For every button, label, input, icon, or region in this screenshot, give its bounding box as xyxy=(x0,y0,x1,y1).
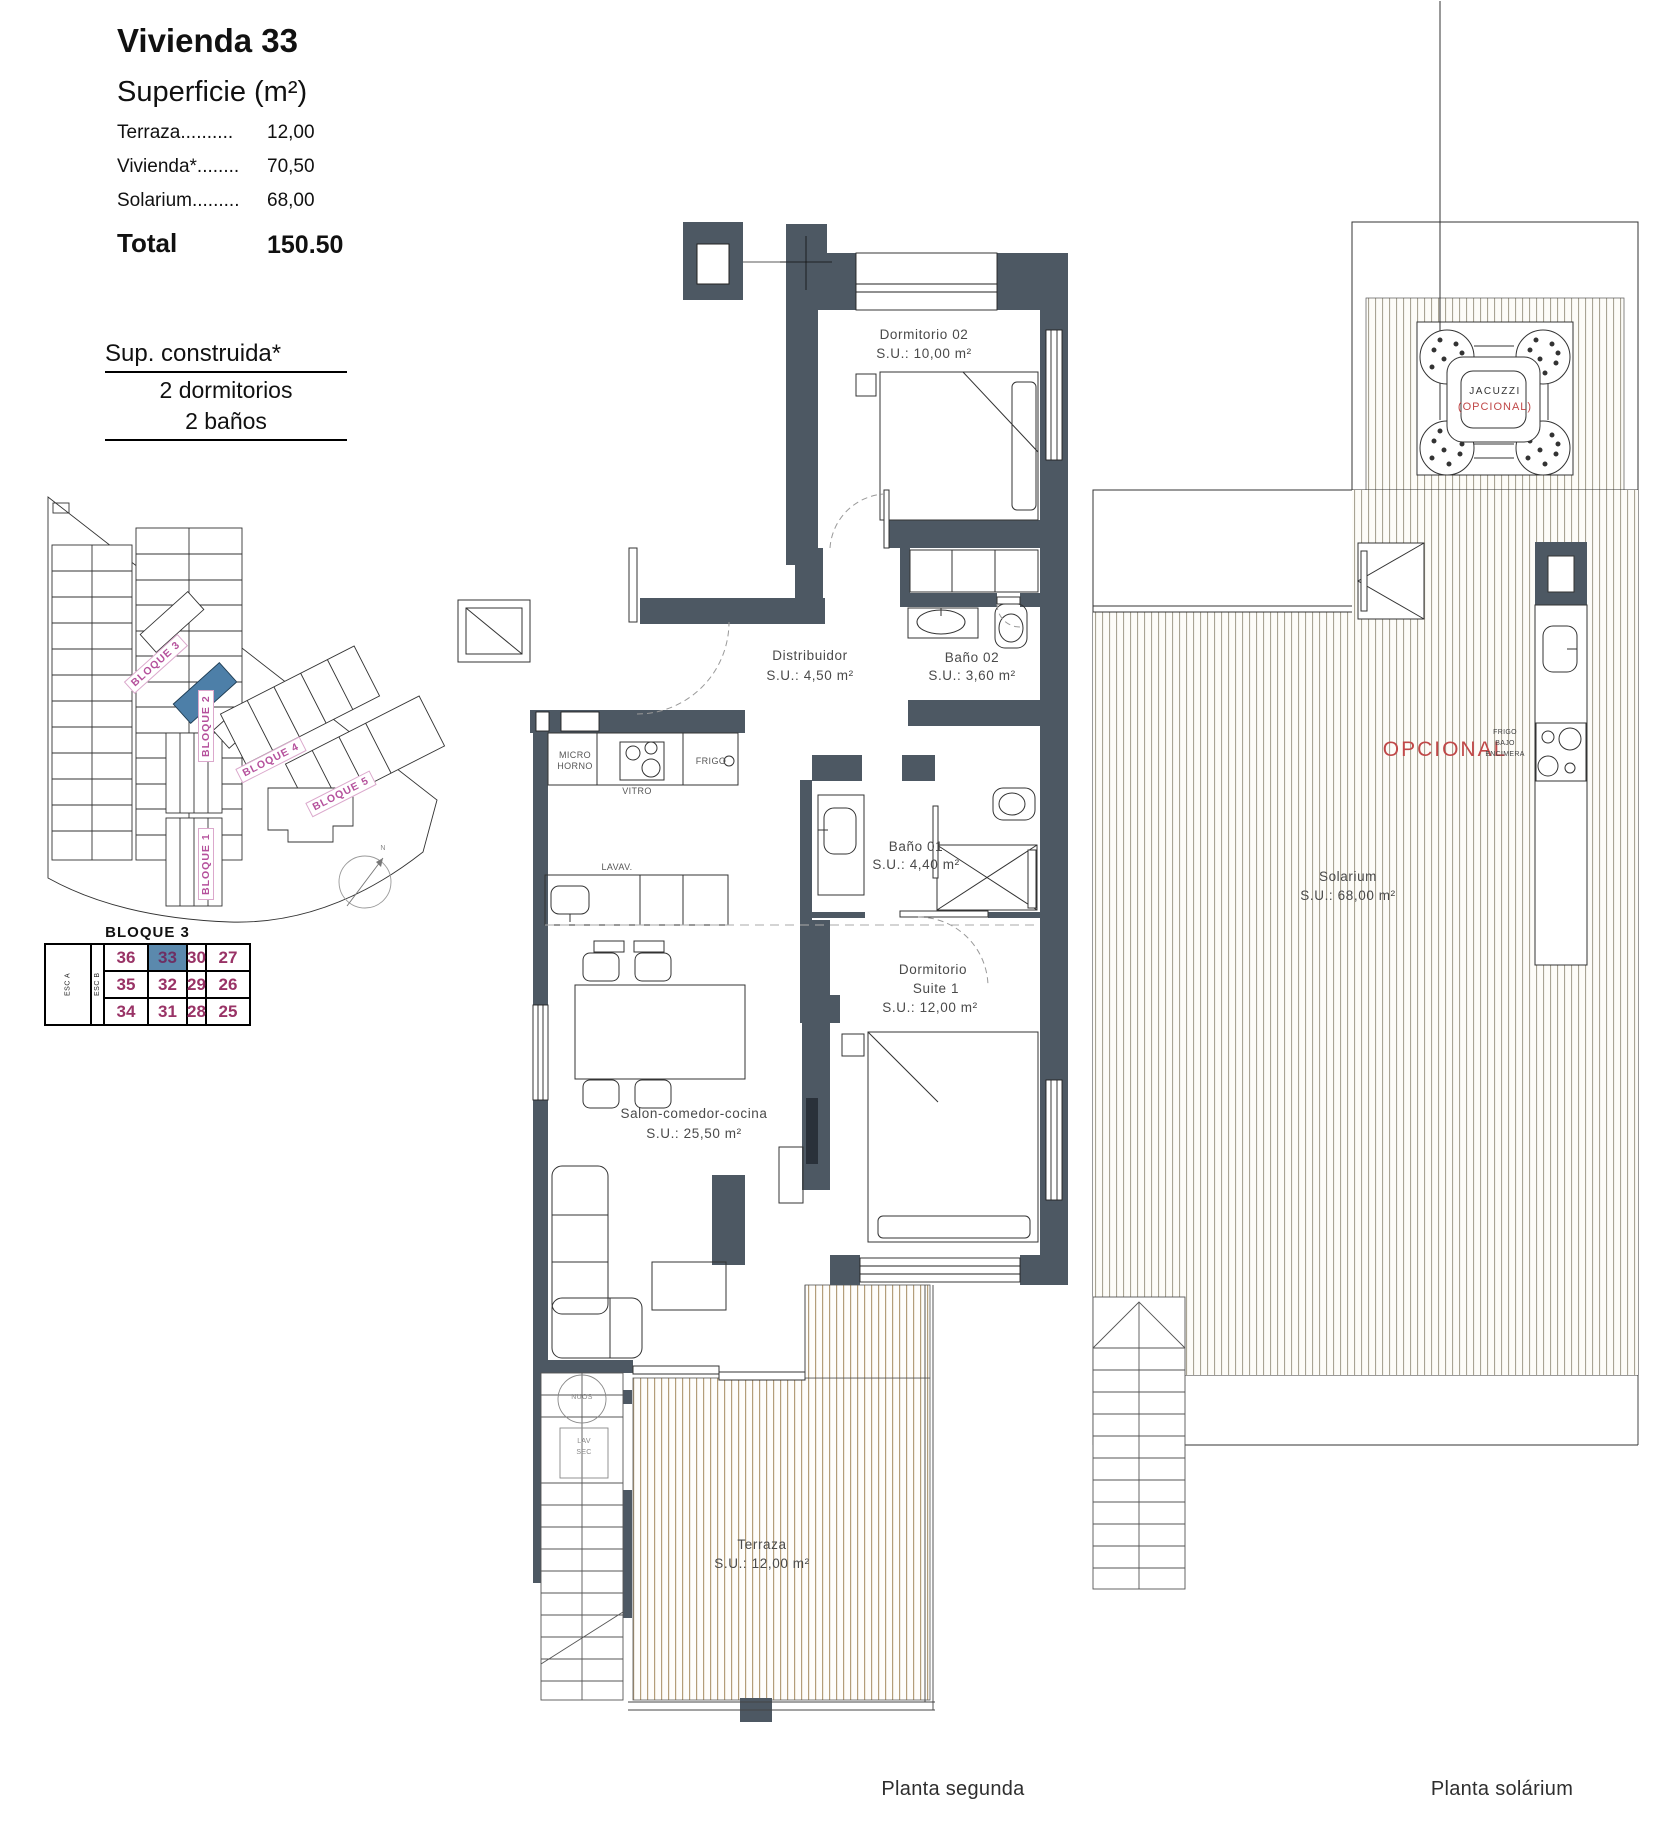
microwave-label: MICRO xyxy=(559,750,591,760)
optional-kitchen-label: OPCIONAL xyxy=(1383,738,1508,762)
site-label-bloque2: BLOQUE 2 xyxy=(198,690,214,762)
jacuzzi-label: JACUZZI xyxy=(1469,386,1521,397)
dishwasher-label: LAVAV. xyxy=(601,862,632,872)
room-solarium-name: Solarium xyxy=(1319,869,1377,884)
unit-cell: 35 xyxy=(104,971,148,998)
second-floor-plan xyxy=(458,222,1068,1722)
unit-cell: 31 xyxy=(148,998,187,1025)
room-suite-name: Dormitorio xyxy=(899,962,967,977)
unit-cell: 25 xyxy=(206,998,250,1025)
room-dormitorio02-area: S.U.: 10,00 m² xyxy=(876,346,971,361)
room-suite-area: S.U.: 12,00 m² xyxy=(882,1000,977,1015)
built-surface-title: Sup. construida* xyxy=(105,340,347,373)
jacuzzi-optional-label: (OPCIONAL) xyxy=(1458,401,1532,413)
total-label: Total xyxy=(117,228,177,259)
surface-row-label: Terraza.......... xyxy=(117,122,267,144)
room-distribuidor-name: Distribuidor xyxy=(772,648,847,663)
surface-heading: Superficie (m²) xyxy=(117,76,307,109)
site-plan xyxy=(48,497,445,922)
room-solarium-area: S.U.: 68,00 m² xyxy=(1300,888,1395,903)
surface-row-value: 12,00 xyxy=(267,122,315,144)
surface-row-value: 70,50 xyxy=(267,156,315,178)
unit-cell: 36 xyxy=(104,944,148,971)
built-surface-block: Sup. construida* 2 dormitorios 2 baños xyxy=(105,340,347,441)
kitchenette-frigo-label: FRIGO xyxy=(1493,729,1517,736)
room-bano01-area: S.U.: 4,40 m² xyxy=(872,857,959,872)
room-bano02-area: S.U.: 3,60 m² xyxy=(928,668,1015,683)
room-distribuidor-area: S.U.: 4,50 m² xyxy=(766,668,853,683)
unit-cell: 30 xyxy=(187,944,206,971)
surface-row-label: Solarium......... xyxy=(117,190,267,212)
site-label-bloque1: BLOQUE 1 xyxy=(198,828,214,900)
room-terraza-name: Terraza xyxy=(737,1537,786,1552)
bloque3-unit-table: BLOQUE 3 36 ESC A 33 30 ESC B 27 35 32 2… xyxy=(44,924,251,1026)
room-suite-name2: Suite 1 xyxy=(913,981,959,996)
bathroom-count: 2 baños xyxy=(105,408,347,435)
unit-cell-highlighted: 33 xyxy=(148,944,187,971)
room-dormitorio02-name: Dormitorio 02 xyxy=(880,327,969,342)
total-value: 150.50 xyxy=(267,231,343,260)
dryer-label: SEC xyxy=(576,1449,591,1456)
surface-row-value: 68,00 xyxy=(267,190,315,212)
solarium-plan xyxy=(1093,1,1638,1589)
water-heater-label: NUOS xyxy=(571,1394,592,1401)
surface-row-label: Vivienda*........ xyxy=(117,156,267,178)
unit-cell: 27 xyxy=(206,944,250,971)
bedroom-count: 2 dormitorios xyxy=(105,377,347,404)
unit-cell: 26 xyxy=(206,971,250,998)
north-label: N xyxy=(380,845,385,852)
unit-cell: 34 xyxy=(104,998,148,1025)
room-terraza-area: S.U.: 12,00 m² xyxy=(714,1556,809,1571)
stair-b-label: ESC B xyxy=(91,944,104,1025)
sheet-title: Vivienda 33 xyxy=(117,22,298,60)
room-bano02-name: Baño 02 xyxy=(945,650,1000,665)
north-compass-icon xyxy=(339,856,391,908)
oven-label: HORNO xyxy=(557,761,593,771)
room-salon-name: Salon-comedor-cocina xyxy=(620,1106,767,1121)
caption-second-floor: Planta segunda xyxy=(881,1778,1024,1801)
washer-label: LAV xyxy=(577,1438,591,1445)
room-bano01-name: Baño 01 xyxy=(889,839,944,854)
stair-a-label: ESC A xyxy=(45,944,91,1025)
floorplan-sheet: { "summary": { "title": "Vivienda 33", "… xyxy=(0,0,1653,1823)
fridge-label: FRIGO xyxy=(696,756,727,766)
surface-row: Vivienda*........ 70,50 xyxy=(117,156,315,178)
surface-row: Solarium......... 68,00 xyxy=(117,190,315,212)
unit-cell: 28 xyxy=(187,998,206,1025)
unit-cell: 32 xyxy=(148,971,187,998)
caption-solarium-floor: Planta solárium xyxy=(1431,1778,1573,1801)
unit-table-title: BLOQUE 3 xyxy=(44,924,251,941)
room-salon-area: S.U.: 25,50 m² xyxy=(646,1126,741,1141)
kitchenette-bajo-label: BAJO xyxy=(1495,740,1514,747)
unit-cell: 29 xyxy=(187,971,206,998)
kitchenette-encimera-label: ENCIMERA xyxy=(1485,751,1524,758)
hob-label: VITRO xyxy=(622,786,652,796)
surface-row: Terraza.......... 12,00 xyxy=(117,122,315,144)
plans-linework xyxy=(0,0,1653,1823)
